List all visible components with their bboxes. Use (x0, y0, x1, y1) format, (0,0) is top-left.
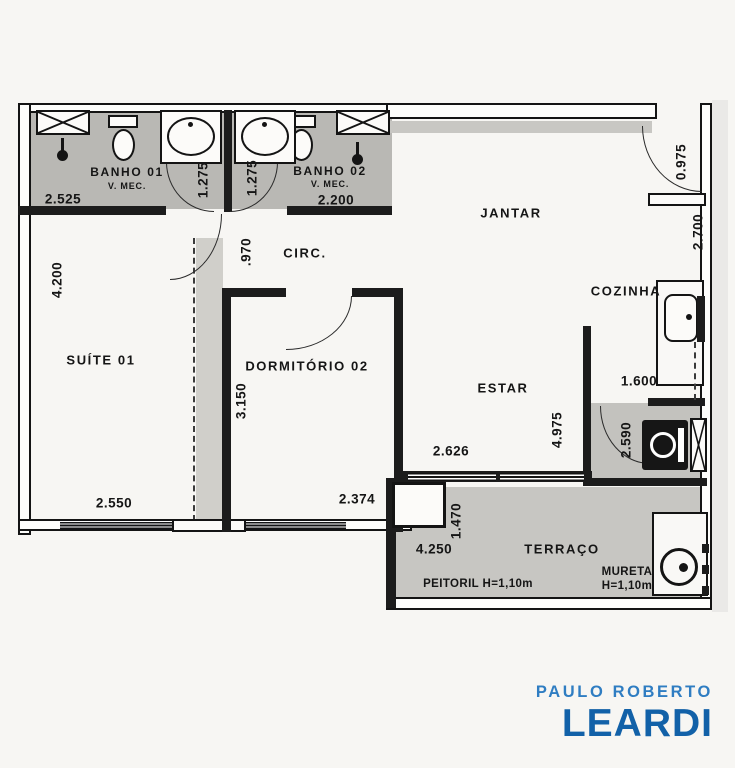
wall (583, 326, 591, 486)
entry-door-arc (642, 126, 702, 192)
washer-door-icon (650, 432, 676, 458)
room-label-banho02: BANHO 02 (293, 164, 366, 178)
room-label-jantar: JANTAR (480, 206, 541, 221)
grill-center-icon (679, 563, 688, 572)
room-label-cozinha: COZINHA (591, 284, 661, 299)
terraco-step (392, 482, 446, 528)
dim-banho01-door: 1.275 (196, 162, 211, 198)
room-note-banho01: V. MEC. (108, 181, 146, 191)
dim-dorm-width: 2.374 (339, 492, 375, 507)
dim-terraco-width: 4.250 (416, 542, 452, 557)
room-label-dormitorio02: DORMITÓRIO 02 (245, 359, 368, 374)
washer-slot-icon (678, 428, 684, 462)
dim-circ-width: .970 (239, 238, 254, 266)
wardrobe-strip (196, 238, 223, 521)
dim-terraco-depth: 1.470 (449, 503, 464, 539)
brand-logo: PAULO ROBERTO LEARDI (536, 684, 713, 743)
room-label-estar: ESTAR (477, 381, 528, 396)
wall (591, 478, 707, 486)
dormitorio-door-arc (286, 296, 352, 350)
vent-shaft-icon (690, 418, 707, 472)
kitchen-faucet-icon (686, 314, 692, 320)
wall (386, 597, 712, 610)
wall-tick (702, 586, 709, 595)
faucet-icon (188, 122, 193, 127)
wall-tick (702, 565, 709, 574)
vent-shaft-icon (336, 110, 390, 135)
dim-cozinha-width: 1.600 (621, 374, 657, 389)
dim-banho01-width: 2.525 (45, 192, 81, 207)
dim-suite-depth: 4.200 (50, 262, 65, 298)
hall-strip (390, 121, 652, 133)
dim-suite-width: 2.550 (96, 496, 132, 511)
room-label-banho01: BANHO 01 (90, 165, 163, 179)
dim-estar-depth: 4.975 (550, 412, 565, 448)
shower-head-icon (57, 150, 68, 161)
wall (222, 288, 231, 532)
room-label-terraco: TERRAÇO (524, 542, 599, 557)
entry-wall-stub (648, 193, 706, 206)
wall (222, 288, 286, 297)
dim-dorm-depth: 3.150 (234, 383, 249, 419)
note-mureta-line1: MURETA (602, 566, 653, 578)
room-label-circ: CIRC. (283, 246, 326, 261)
dashed-line (694, 342, 696, 400)
window-jog (172, 519, 246, 532)
note-mureta-line2: H=1,10m (602, 580, 652, 592)
window (408, 473, 496, 481)
toilet-icon (108, 115, 138, 128)
window (246, 522, 346, 529)
wardrobe-dashed-line (193, 238, 195, 521)
floor-plan: BANHO 01 V. MEC. BANHO 02 V. MEC. JANTAR… (0, 0, 735, 768)
hall-wall (386, 103, 657, 119)
dim-service-width: 2.590 (619, 422, 634, 458)
wall (18, 206, 166, 215)
dim-entry-door: 0.975 (674, 144, 689, 180)
dim-entry-side: 2.700 (691, 214, 706, 250)
wall (18, 103, 31, 535)
faucet-icon (262, 122, 267, 127)
dim-banho02-door: 1.275 (245, 160, 260, 196)
wall-tick (702, 544, 709, 553)
vent-shaft-icon (36, 110, 90, 135)
kitchen-sink-icon (664, 294, 698, 342)
dim-banho02-width: 2.200 (318, 193, 354, 208)
wall-fixture (697, 296, 705, 342)
brand-line2: LEARDI (536, 704, 713, 743)
toilet-bowl-icon (112, 129, 135, 161)
dim-estar-width: 2.626 (433, 444, 469, 459)
scan-shadow (712, 100, 728, 612)
wall (648, 398, 705, 406)
note-peitoril: PEITORIL H=1,10m (423, 578, 533, 590)
window (500, 473, 584, 481)
brand-line1: PAULO ROBERTO (536, 684, 713, 701)
room-note-banho02: V. MEC. (311, 179, 349, 189)
room-label-suite01: SUÍTE 01 (66, 353, 135, 368)
window (60, 522, 172, 529)
